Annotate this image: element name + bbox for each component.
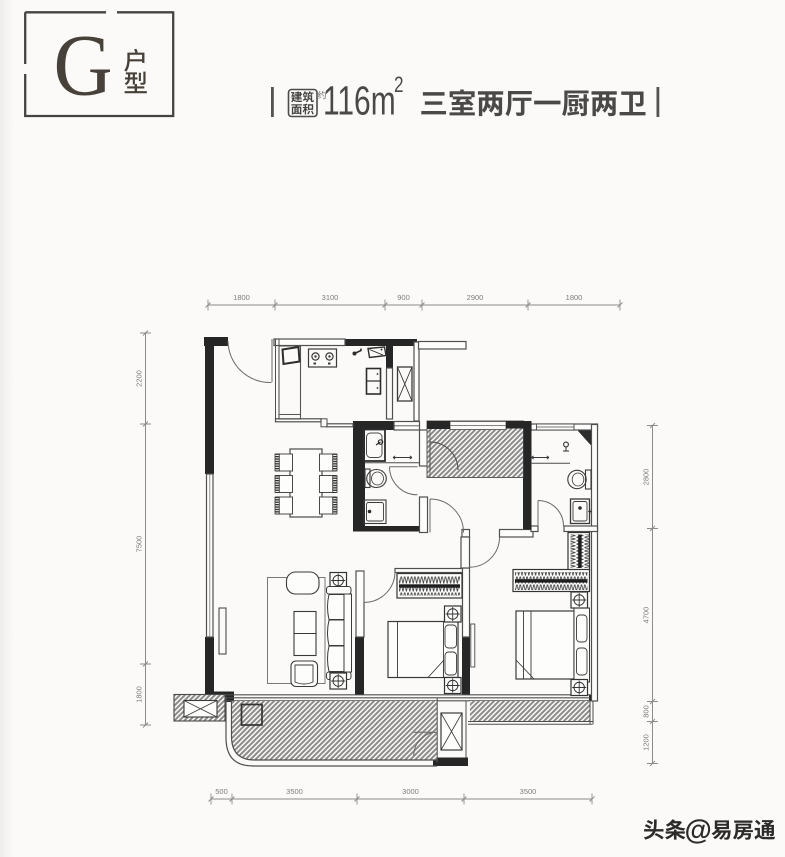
svg-text:3000: 3000 <box>402 787 419 796</box>
svg-text:800: 800 <box>642 705 651 718</box>
svg-text:116m: 116m <box>323 78 396 124</box>
svg-text:2800: 2800 <box>642 469 651 486</box>
svg-text:900: 900 <box>397 293 410 302</box>
svg-text:2900: 2900 <box>467 293 484 302</box>
svg-text:1200: 1200 <box>642 734 651 751</box>
svg-text:2: 2 <box>394 73 404 98</box>
svg-text:3500: 3500 <box>520 787 537 796</box>
svg-text:1800: 1800 <box>233 293 250 302</box>
svg-text:500: 500 <box>215 787 228 796</box>
svg-text:4700: 4700 <box>642 607 651 624</box>
svg-text:3500: 3500 <box>286 787 303 796</box>
svg-text:7500: 7500 <box>135 536 144 553</box>
svg-text:1800: 1800 <box>566 293 583 302</box>
svg-text:3100: 3100 <box>322 293 339 302</box>
svg-text:2200: 2200 <box>135 370 144 387</box>
svg-text:G: G <box>53 17 112 114</box>
svg-text:1800: 1800 <box>135 686 144 703</box>
